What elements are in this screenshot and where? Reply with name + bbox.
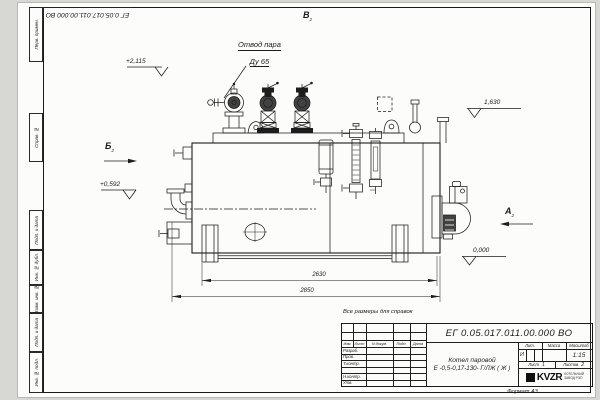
kvzr-logo-text: KVZR (537, 372, 562, 383)
callout-line1: Отвод пара (238, 41, 281, 51)
support-legs (202, 225, 408, 262)
left-bracket-valve (159, 222, 192, 244)
boiler-shell (192, 133, 440, 253)
view-label-v: В2 (303, 11, 312, 23)
title-block: ЕГ 0.05.017.011.00.000 ВО Котел паровой … (341, 323, 593, 387)
water-gauge-2 (370, 128, 382, 194)
col-date: Дата (410, 340, 426, 347)
kvzr-logo-icon (526, 373, 535, 382)
lit-label: Лит. (518, 342, 542, 349)
elevation-mark-right (467, 109, 521, 118)
dashed-component-box (378, 97, 393, 112)
left-wall-tap (174, 147, 192, 159)
format-label: Формат А3 (480, 389, 565, 395)
title-block-doc-number: ЕГ 0.05.017.011.00.000 ВО (426, 324, 592, 342)
elevation-value-zero: 0,000 (473, 247, 489, 254)
company-logo-cell: KVZR КОТЕЛЬНЫЙ ЗАВОД РЭП (518, 368, 592, 386)
steam-outlet-valve (208, 83, 245, 133)
dimension-2850: 2850 (284, 288, 330, 294)
sheet-cell: Лист1 (518, 361, 555, 368)
dimension-2630: 2630 (296, 272, 342, 278)
col-doc: N докум. (366, 340, 393, 347)
elevation-mark-zero (462, 257, 506, 266)
scale-value: 1:15 (566, 349, 592, 361)
kvzr-logo-subtext: КОТЕЛЬНЫЙ ЗАВОД РЭП (564, 373, 584, 381)
safety-valve-1 (257, 82, 279, 133)
reference-note: Все размеры для справок (343, 309, 412, 315)
elevation-mark-top (127, 67, 168, 76)
mass-label: Масса (542, 342, 566, 349)
elevation-value-left: +0,592 (100, 181, 120, 188)
steam-outlet-callout: Отвод пара Ду 65 (238, 41, 281, 68)
elevation-value-right: 1,630 (484, 99, 500, 106)
burner (432, 182, 470, 240)
left-wall-stub (185, 184, 192, 192)
view-label-b: Б2 (105, 142, 114, 154)
role-utv: Утв. (343, 380, 366, 387)
top-right-stub (438, 118, 449, 144)
water-gauge-1 (342, 124, 363, 200)
scale-label: Масштаб (566, 342, 592, 349)
feed-elbow (167, 189, 192, 219)
role-tkontr: Т.контр. (343, 360, 366, 367)
col-list: Лист (353, 340, 366, 347)
view-label-a: А2 (505, 207, 514, 219)
view-arrow-a (500, 222, 533, 226)
safety-valve-2 (291, 82, 313, 133)
lifting-lug (384, 120, 399, 133)
elevation-value-top: +2,115 (126, 58, 146, 65)
col-sign: Подп. (393, 340, 410, 347)
manhole (243, 222, 267, 242)
product-name: Котел паровой Е -0,5-0,17-130- Г/ЛЖ ( Ж … (426, 342, 518, 386)
elevation-mark-left (101, 190, 136, 199)
lit-value: И (518, 349, 526, 361)
eyebolt (410, 100, 421, 133)
col-izm: Изм. (342, 340, 353, 347)
view-arrow-b (104, 159, 137, 163)
callout-line2: Ду 65 (250, 58, 270, 67)
sheets-cell: Листов2 (555, 361, 592, 368)
